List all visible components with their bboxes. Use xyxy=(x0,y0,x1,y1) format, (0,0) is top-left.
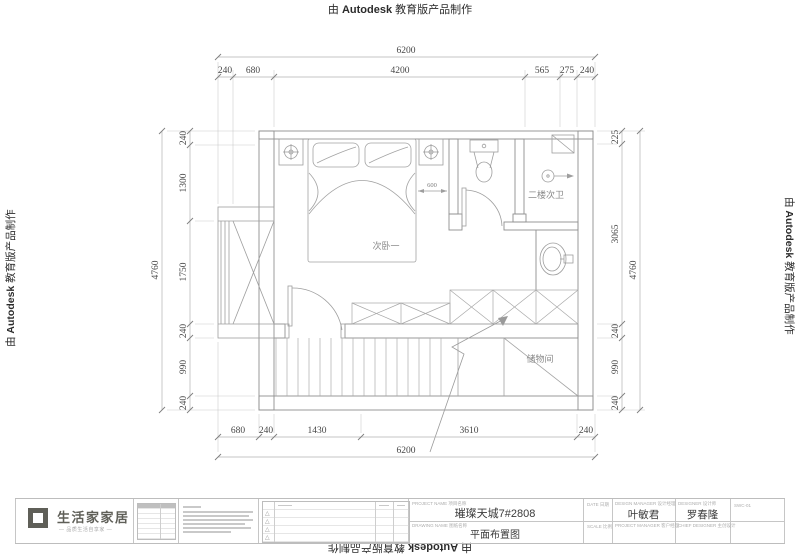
dim-bottom-overall: 6200 xyxy=(397,446,416,456)
bathroom-door xyxy=(462,188,502,226)
floorplan-drawing: 600 xyxy=(0,0,800,560)
stamp-prefix: 由 xyxy=(783,197,795,210)
wall-lamp-left xyxy=(279,139,303,165)
drawing-name: 平面布置图 xyxy=(425,526,565,541)
dim-top-6: 240 xyxy=(580,66,595,76)
stamp-brand: Autodesk xyxy=(5,286,17,334)
drawing-number: SWC-01 xyxy=(734,503,751,508)
bed-offset-dimension: 600 xyxy=(418,182,447,193)
dim-right-overall: 4760 xyxy=(629,260,639,279)
date-label: DATE 日期 xyxy=(587,502,609,508)
design-manager-name: 叶敏君 xyxy=(612,507,675,522)
cad-floorplan-sheet: { "stamp": { "prefix": "由 ", "brand": "A… xyxy=(0,0,800,560)
dim-bottom-3: 1430 xyxy=(308,426,327,436)
dim-bottom-4: 3610 xyxy=(460,426,479,436)
dim-left-overall: 4760 xyxy=(151,260,161,279)
basin xyxy=(540,243,573,275)
dim-bottom-1: 680 xyxy=(231,426,246,436)
title-block: 生活家家居 — 品质生活自享家 — △ △ △ △ PROJECT NAME 项… xyxy=(15,498,785,544)
legend-table xyxy=(137,503,176,540)
company-logo-name: 生活家家居 xyxy=(57,507,130,526)
bedroom-door xyxy=(285,286,345,338)
dim-right-4: 990 xyxy=(611,360,621,375)
autodesk-stamp-right: 由 Autodesk 教育版产品制作 xyxy=(782,197,797,335)
dim-top-overall: 6200 xyxy=(397,46,416,56)
stamp-prefix: 由 xyxy=(328,4,342,16)
scale-label: SCALE 比例 xyxy=(587,524,612,530)
autodesk-stamp-top: 由 Autodesk 教育版产品制作 xyxy=(0,1,800,17)
wall-lamp-right xyxy=(419,139,443,165)
company-logo-icon xyxy=(28,508,48,528)
bed xyxy=(308,139,416,262)
chief-designer-label: CHIEF DESIGNER 主创设计 xyxy=(678,523,736,529)
dim-right-3: 240 xyxy=(611,324,621,339)
dim-600: 600 xyxy=(427,182,437,189)
bathroom-label: 二楼次卫 xyxy=(528,189,564,200)
dim-top-4: 565 xyxy=(535,66,550,76)
dim-left-4: 240 xyxy=(179,324,189,339)
dim-left-6: 240 xyxy=(179,396,189,411)
project-name: 璀璨天城7#2808 xyxy=(425,505,565,521)
storage-room xyxy=(458,338,578,396)
dim-right-1: 225 xyxy=(611,130,621,145)
dim-left-1: 240 xyxy=(179,131,189,146)
dim-left-2: 1300 xyxy=(179,173,189,192)
dim-right-2: 3065 xyxy=(611,224,621,243)
dimension-lines xyxy=(162,57,640,457)
dimension-ticks xyxy=(159,54,643,460)
stamp-suffix: 教育版产品制作 xyxy=(392,4,472,16)
stamp-brand: Autodesk xyxy=(342,4,392,16)
dim-left-3: 1750 xyxy=(179,262,189,281)
stamp-prefix: 由 xyxy=(5,334,17,347)
dim-top-1: 240 xyxy=(218,66,233,76)
company-logo-tagline: — 品质生活自享家 — xyxy=(59,526,112,533)
toilet xyxy=(470,140,498,182)
dim-left-5: 990 xyxy=(179,360,189,375)
dim-top-3: 4200 xyxy=(391,66,410,76)
designer-name: 罗春隆 xyxy=(675,507,730,522)
shower-head-icon xyxy=(542,170,574,182)
stamp-suffix: 教育版产品制作 xyxy=(5,209,17,285)
revision-table: △ △ △ △ xyxy=(262,501,410,543)
cabinet-band xyxy=(352,290,578,324)
dim-top-5: 275 xyxy=(560,66,575,76)
dim-bottom-5: 240 xyxy=(579,426,594,436)
dim-bottom-2: 240 xyxy=(259,426,274,436)
stair-treads xyxy=(276,338,441,396)
project-manager-label: PROJECT MANAGER 客户经理 xyxy=(615,523,679,529)
dim-right-5: 240 xyxy=(611,396,621,411)
storage-label: 储物间 xyxy=(526,353,553,364)
autodesk-stamp-left: 由 Autodesk 教育版产品制作 xyxy=(3,209,18,347)
bay-window-wardrobe xyxy=(218,207,274,338)
bedroom-label: 次卧一 xyxy=(372,240,399,251)
dim-top-2: 680 xyxy=(246,66,261,76)
stamp-brand: Autodesk xyxy=(783,210,795,258)
shower-tray xyxy=(552,135,574,153)
stamp-suffix: 教育版产品制作 xyxy=(783,258,795,334)
dimension-texts: 6200 240 680 4200 565 275 240 680 240 14… xyxy=(151,46,639,456)
